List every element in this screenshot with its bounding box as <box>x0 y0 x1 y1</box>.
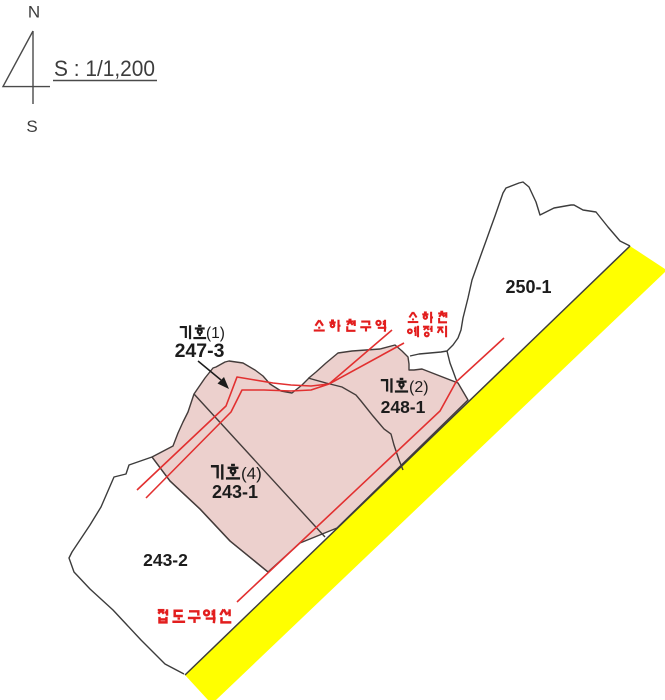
svg-text:243-1: 243-1 <box>212 482 258 502</box>
svg-text:S : 1/1,200: S : 1/1,200 <box>54 56 155 81</box>
svg-text:250-1: 250-1 <box>505 277 551 297</box>
svg-text:(2): (2) <box>409 379 429 396</box>
svg-text:247-3: 247-3 <box>175 340 225 362</box>
svg-text:243-2: 243-2 <box>143 550 188 570</box>
svg-text:(4): (4) <box>241 464 262 483</box>
svg-text:N: N <box>28 3 40 22</box>
svg-text:248-1: 248-1 <box>381 397 426 417</box>
svg-text:S: S <box>26 117 37 136</box>
